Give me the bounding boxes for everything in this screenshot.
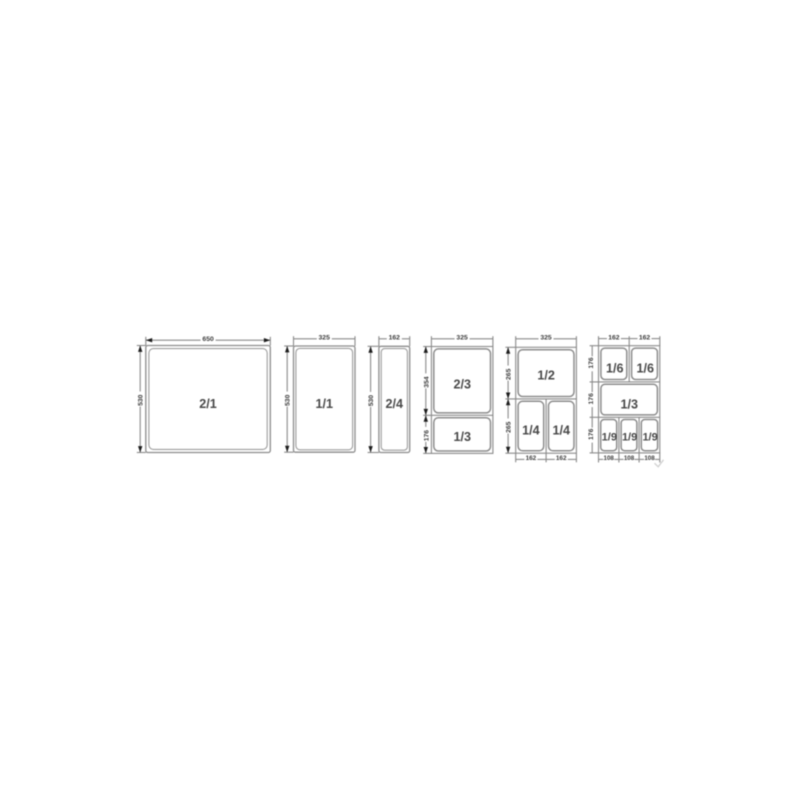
svg-text:162: 162 (556, 455, 567, 462)
svg-text:530: 530 (138, 394, 145, 406)
svg-text:1/9: 1/9 (642, 432, 657, 444)
svg-text:325: 325 (540, 335, 552, 342)
svg-text:325: 325 (456, 335, 468, 342)
svg-text:176: 176 (423, 430, 430, 442)
svg-text:1/4: 1/4 (522, 424, 540, 438)
svg-text:2/1: 2/1 (199, 397, 217, 411)
svg-text:1/6: 1/6 (637, 361, 655, 375)
svg-text:1/9: 1/9 (622, 432, 637, 444)
svg-text:162: 162 (608, 334, 620, 341)
svg-text:108: 108 (604, 455, 615, 462)
svg-text:265: 265 (506, 368, 513, 380)
svg-text:2/4: 2/4 (386, 397, 404, 411)
svg-text:265: 265 (506, 421, 513, 433)
svg-text:108: 108 (644, 455, 655, 462)
svg-text:650: 650 (202, 336, 214, 343)
svg-text:354: 354 (423, 376, 430, 388)
svg-text:530: 530 (285, 394, 292, 406)
svg-text:162: 162 (389, 335, 401, 342)
svg-text:1/1: 1/1 (315, 397, 333, 411)
svg-text:108: 108 (624, 455, 635, 462)
svg-text:162: 162 (526, 455, 537, 462)
svg-text:1/9: 1/9 (602, 432, 617, 444)
svg-text:1/3: 1/3 (453, 430, 471, 444)
svg-text:325: 325 (319, 335, 331, 342)
svg-text:176: 176 (588, 393, 595, 405)
svg-text:176: 176 (588, 428, 595, 440)
svg-text:530: 530 (368, 395, 375, 407)
svg-text:1/6: 1/6 (606, 361, 624, 375)
svg-text:1/3: 1/3 (620, 397, 638, 411)
svg-text:1/4: 1/4 (552, 424, 570, 438)
svg-text:176: 176 (588, 357, 595, 369)
svg-text:1/2: 1/2 (537, 369, 555, 383)
svg-text:162: 162 (639, 334, 651, 341)
svg-text:2/3: 2/3 (453, 378, 471, 392)
